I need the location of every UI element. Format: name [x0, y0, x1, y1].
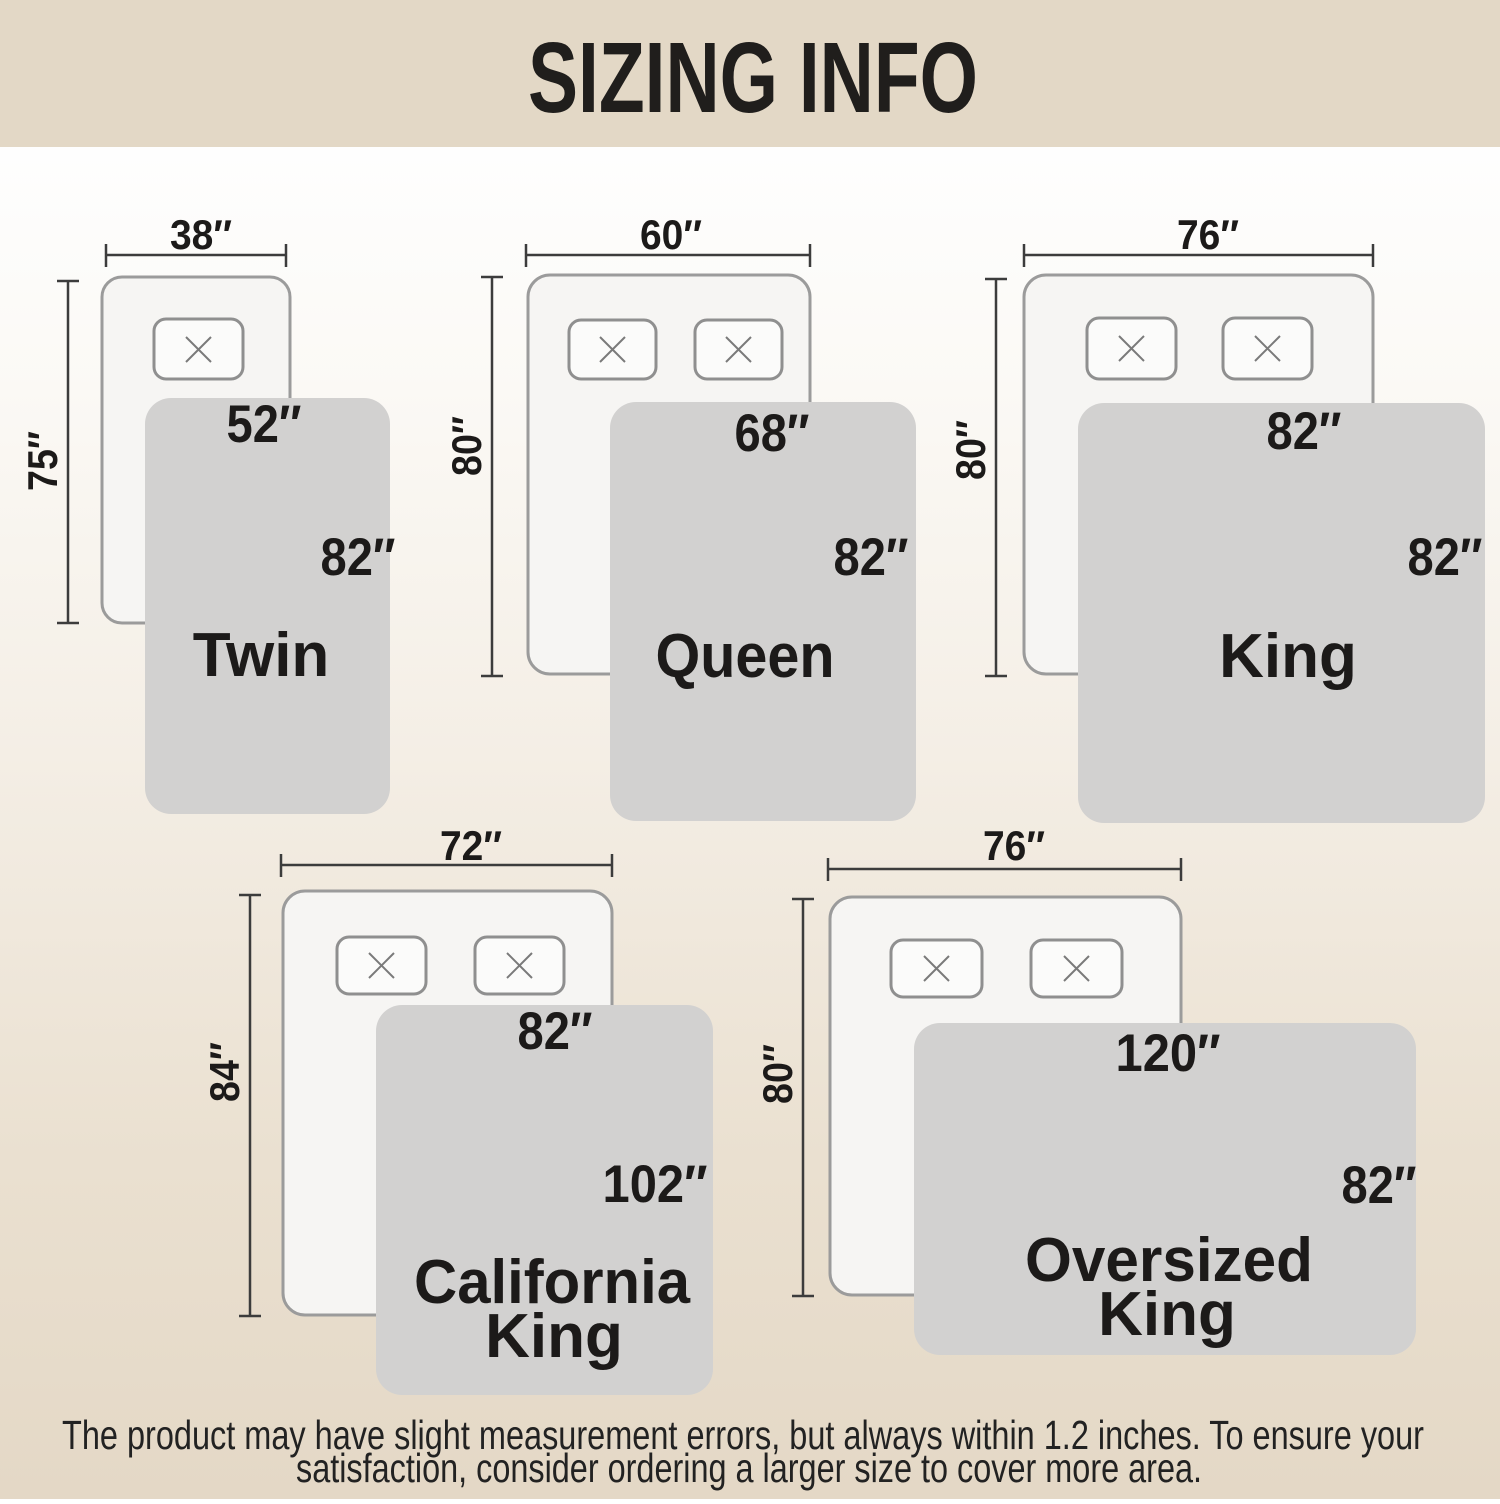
svg-text:72″: 72″ — [440, 822, 502, 869]
svg-text:82″: 82″ — [1408, 528, 1483, 587]
svg-text:82″: 82″ — [1342, 1156, 1417, 1215]
svg-text:76″: 76″ — [983, 822, 1045, 869]
svg-text:75″: 75″ — [19, 431, 66, 491]
svg-text:King: King — [1098, 1280, 1236, 1349]
svg-text:120″: 120″ — [1116, 1024, 1221, 1083]
svg-text:Queen: Queen — [656, 622, 835, 691]
svg-text:80″: 80″ — [754, 1044, 801, 1104]
svg-text:82″: 82″ — [1267, 402, 1342, 461]
svg-text:82″: 82″ — [518, 1002, 593, 1061]
svg-text:84″: 84″ — [201, 1042, 248, 1102]
svg-text:82″: 82″ — [834, 528, 909, 587]
svg-text:satisfaction, consider orderin: satisfaction, consider ordering a larger… — [296, 1445, 1202, 1491]
svg-text:80″: 80″ — [947, 420, 994, 480]
svg-text:King: King — [1219, 622, 1357, 691]
svg-text:38″: 38″ — [170, 211, 232, 258]
svg-text:SIZING INFO: SIZING INFO — [528, 22, 978, 134]
svg-text:Twin: Twin — [193, 621, 330, 690]
svg-text:King: King — [485, 1302, 623, 1371]
svg-text:82″: 82″ — [321, 528, 396, 587]
svg-text:76″: 76″ — [1177, 211, 1239, 258]
svg-text:80″: 80″ — [443, 416, 490, 476]
svg-text:60″: 60″ — [640, 211, 702, 258]
svg-text:52″: 52″ — [227, 395, 302, 454]
svg-text:102″: 102″ — [603, 1155, 708, 1214]
svg-text:68″: 68″ — [735, 404, 810, 463]
